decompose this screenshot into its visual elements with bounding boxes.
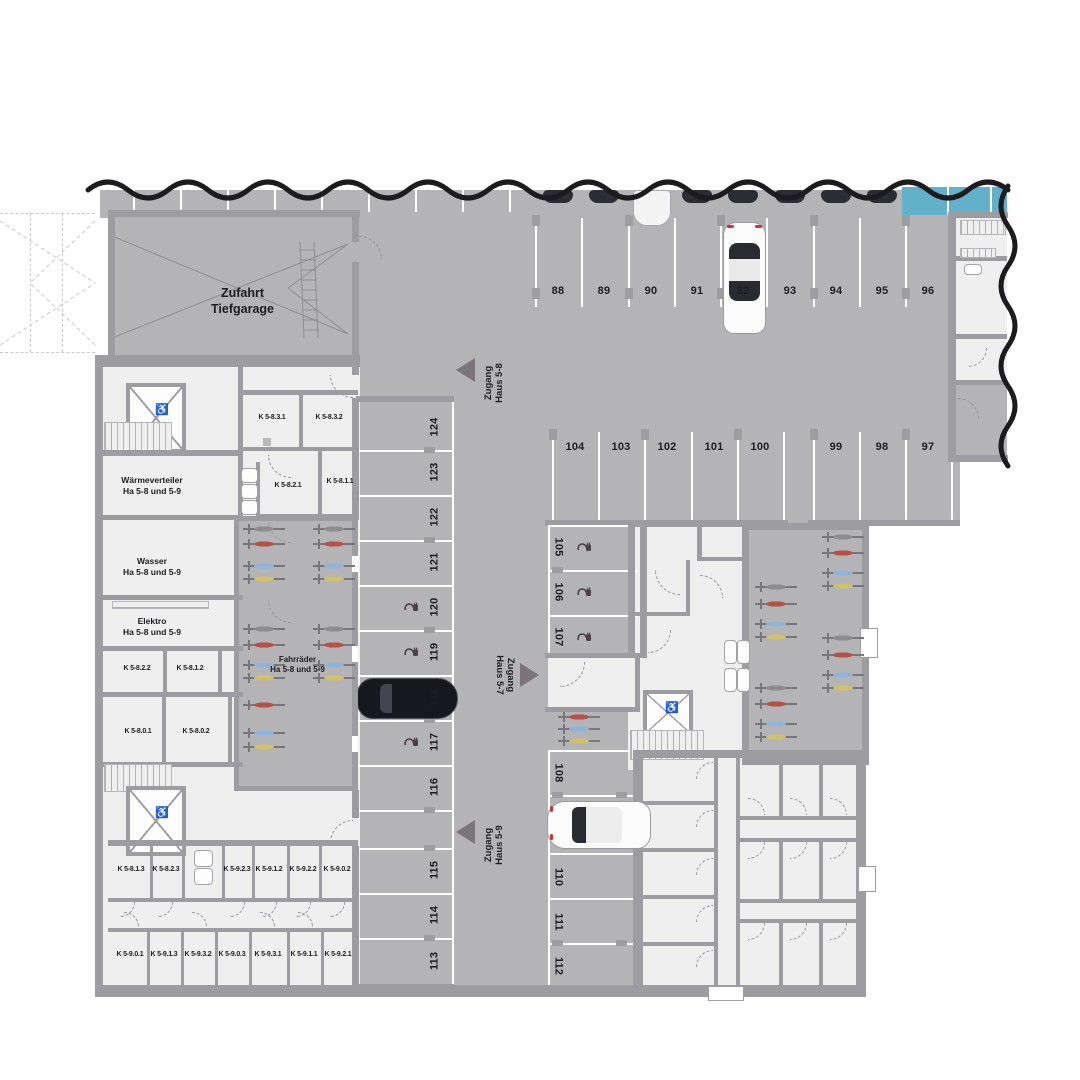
parking-spot-119-label: 119 xyxy=(420,646,450,659)
wall xyxy=(736,757,740,987)
zugang-haus-5-9-label: Zugang Haus 5-9 xyxy=(483,814,505,876)
exit-door xyxy=(708,986,744,1001)
bicycle-icon xyxy=(243,624,285,634)
ev-charging-icon xyxy=(403,645,419,658)
parking-tick xyxy=(424,807,435,813)
wall xyxy=(215,930,218,988)
wall xyxy=(103,646,243,651)
parking-line xyxy=(356,585,452,587)
wall xyxy=(545,707,640,712)
parking-spot-111-label: 111 xyxy=(544,916,574,929)
stroller-icon xyxy=(724,668,737,692)
parking-spot-120-label: 120 xyxy=(420,601,450,614)
room-label-k-5-8-3-1: K 5-8.3.1 xyxy=(248,414,296,421)
parking-line xyxy=(356,893,452,895)
parking-spot-91-label: 91 xyxy=(683,284,711,297)
parking-tick xyxy=(625,215,633,226)
parking-spot-116-label: 116 xyxy=(420,781,450,794)
bicycle-icon xyxy=(558,724,600,734)
parking-line xyxy=(548,750,633,752)
parking-tick xyxy=(717,215,725,226)
wall xyxy=(819,757,823,819)
zugang-haus-5-7-label: Zugang Haus 5-7 xyxy=(494,644,516,706)
wall xyxy=(819,840,823,902)
wall xyxy=(162,697,166,765)
parking-line xyxy=(356,495,452,497)
wall xyxy=(745,758,869,765)
wall xyxy=(181,930,184,988)
wall xyxy=(352,398,359,520)
wall xyxy=(287,930,290,988)
ev-charging-icon xyxy=(576,585,592,598)
bicycle-icon xyxy=(755,732,797,742)
bicycle-icon xyxy=(822,670,864,680)
bicycle-icon xyxy=(755,599,797,609)
bottom-right-block-floor xyxy=(641,755,860,990)
parking-line xyxy=(581,218,583,307)
bicycle-icon xyxy=(822,633,864,643)
bicycle-icon xyxy=(822,568,864,578)
parking-spot-89-label: 89 xyxy=(590,284,618,297)
room-label-k-5-8-2-1: K 5-8.2.1 xyxy=(264,482,312,489)
parking-line xyxy=(859,432,861,523)
parking-line xyxy=(356,810,452,812)
floor-drain-icon xyxy=(263,438,271,446)
ramp-label-line1: Zufahrt xyxy=(170,285,315,301)
zugang-5-8-line1: Zugang xyxy=(483,352,494,414)
wall xyxy=(640,525,647,658)
parking-line xyxy=(905,432,907,523)
parking-tick xyxy=(810,288,818,299)
parking-tick xyxy=(616,940,627,946)
zugang-5-7-line1: Zugang xyxy=(505,644,516,706)
bicycle-icon xyxy=(822,532,864,542)
parking-line xyxy=(356,540,452,542)
wall xyxy=(95,362,103,992)
wall xyxy=(697,525,702,561)
parking-tick xyxy=(424,935,435,941)
parking-line xyxy=(674,218,676,307)
zugang-haus-5-9-arrow xyxy=(456,820,475,844)
parking-spot-123-label: 123 xyxy=(420,466,450,479)
parking-spot-92-label: 92 xyxy=(729,284,757,297)
ev-charging-icon xyxy=(403,600,419,613)
cut-line-top xyxy=(88,174,1018,202)
parking-spot-104-label: 104 xyxy=(561,440,589,453)
driveway-lines xyxy=(0,213,95,353)
wall xyxy=(299,392,303,450)
bicycle-icon xyxy=(243,742,285,752)
parking-spot-93-label: 93 xyxy=(776,284,804,297)
wall xyxy=(643,942,718,946)
wall xyxy=(249,930,252,988)
room-label-k-5-9-2-1: K 5-9.2.1 xyxy=(315,951,361,958)
parking-spot-102-label: 102 xyxy=(653,440,681,453)
wall xyxy=(745,523,869,530)
room-label-k-5-8-3-2: K 5-8.3.2 xyxy=(305,414,353,421)
stroller-icon xyxy=(737,640,750,664)
parking-tick xyxy=(902,429,910,440)
parking-line xyxy=(356,630,452,632)
wall xyxy=(218,648,222,694)
parking-line xyxy=(548,898,633,900)
parking-tick xyxy=(549,429,557,440)
tiefgarage-floor-plan: 88 89 90 91 92 93 94 95 96 104 103 102 1… xyxy=(0,0,1080,1080)
wall xyxy=(628,612,690,616)
shelf-icon xyxy=(964,264,982,275)
fahrraeder-line2: Ha 5-8 und 5-9 xyxy=(250,665,345,675)
wall xyxy=(714,757,718,987)
parking-line xyxy=(644,432,646,523)
bicycle-icon xyxy=(313,574,355,584)
bicycle-icon xyxy=(243,561,285,571)
wall xyxy=(147,930,150,988)
parking-tick xyxy=(810,429,818,440)
parking-line xyxy=(356,765,452,767)
wall xyxy=(697,557,749,561)
elektro-line1: Elektro xyxy=(102,616,202,627)
wall xyxy=(234,520,239,790)
exit-door xyxy=(858,866,876,892)
parking-tick xyxy=(424,537,435,543)
wall xyxy=(108,210,360,217)
parking-tick xyxy=(552,792,563,798)
bicycle-icon xyxy=(755,632,797,642)
zugang-5-7-line2: Haus 5-7 xyxy=(493,644,504,706)
room-label-fahrraeder: Fahrräder Ha 5-8 und 5-9 xyxy=(250,655,345,675)
parking-spot-90-label: 90 xyxy=(637,284,665,297)
wall xyxy=(779,840,783,902)
parking-spot-108-label: 108 xyxy=(544,767,574,780)
ev-charging-icon xyxy=(403,735,419,748)
parking-spot-122-label: 122 xyxy=(420,511,450,524)
wheelchair-icon: ♿ xyxy=(665,701,679,714)
zugang-5-9-line2: Haus 5-9 xyxy=(494,814,505,876)
parking-line xyxy=(813,432,815,523)
wall xyxy=(103,692,243,697)
waermeverteiler-line2: Ha 5-8 und 5-9 xyxy=(102,486,202,497)
stroller-icon xyxy=(241,500,258,515)
wall xyxy=(352,262,359,362)
cut-line-right xyxy=(994,186,1022,476)
room-label-elektro: Elektro Ha 5-8 und 5-9 xyxy=(102,616,202,637)
elektro-line2: Ha 5-8 und 5-9 xyxy=(102,627,202,638)
parking-line xyxy=(766,218,768,307)
room-label-wasser: Wasser Ha 5-8 und 5-9 xyxy=(102,556,202,577)
parking-spot-124-label: 124 xyxy=(420,421,450,434)
bicycle-icon xyxy=(313,524,355,534)
parking-line xyxy=(552,432,554,523)
parking-spot-105-label: 105 xyxy=(544,541,574,554)
wall xyxy=(635,653,640,712)
staircase xyxy=(960,248,996,258)
stroller-icon xyxy=(194,868,213,885)
wall xyxy=(643,848,718,852)
wall xyxy=(686,560,690,616)
parking-line xyxy=(737,432,739,523)
bicycle-icon xyxy=(243,728,285,738)
car-icon-spot-92 xyxy=(723,222,766,334)
ev-charging-icon xyxy=(576,630,592,643)
parking-line xyxy=(356,450,452,452)
stroller-icon xyxy=(737,668,750,692)
parking-tick xyxy=(532,288,540,299)
wall xyxy=(234,516,356,521)
parking-tick xyxy=(424,845,435,851)
parking-tick xyxy=(641,429,649,440)
stroller-icon xyxy=(194,850,213,867)
parking-line xyxy=(356,848,452,850)
room-label-k-5-8-0-1: K 5-8.0.1 xyxy=(114,728,162,735)
waermeverteiler-line1: Wärmeverteiler xyxy=(102,475,202,486)
parking-spot-97-label: 97 xyxy=(914,440,942,453)
parking-line xyxy=(691,432,693,523)
parking-spot-110-label: 110 xyxy=(544,871,574,884)
bicycle-icon xyxy=(243,700,285,710)
parking-spot-112-label: 112 xyxy=(544,960,574,973)
wall xyxy=(103,515,243,520)
parking-tick xyxy=(734,429,742,440)
parking-line xyxy=(548,615,638,617)
bicycle-icon xyxy=(313,624,355,634)
parking-spot-100-label: 100 xyxy=(746,440,774,453)
bicycle-icon xyxy=(313,561,355,571)
parking-tick xyxy=(902,288,910,299)
wall xyxy=(352,212,359,242)
wall xyxy=(243,447,358,451)
parking-tick xyxy=(902,215,910,226)
parking-spot-101-label: 101 xyxy=(700,440,728,453)
parking-spot-118-label: 118 xyxy=(420,691,450,704)
room-label-k-5-8-1-2: K 5-8.1.2 xyxy=(166,665,214,672)
parking-spot-106-label: 106 xyxy=(544,586,574,599)
room-label-k-5-8-1-1: K 5-8.1.1 xyxy=(316,478,364,485)
parking-spot-114-label: 114 xyxy=(420,909,450,922)
bicycle-icon xyxy=(558,736,600,746)
bicycle-icon xyxy=(243,539,285,549)
wall xyxy=(321,930,324,988)
parking-tick xyxy=(532,215,540,226)
bicycle-icon xyxy=(243,640,285,650)
bicycle-icon xyxy=(755,719,797,729)
wall xyxy=(228,697,232,765)
vent-grille xyxy=(112,601,209,609)
wall xyxy=(103,450,243,456)
bicycle-icon xyxy=(313,539,355,549)
wheelchair-icon: ♿ xyxy=(155,403,169,416)
parking-tick xyxy=(552,567,563,573)
parking-spot-113-label: 113 xyxy=(420,955,450,968)
bicycle-icon xyxy=(243,574,285,584)
wall xyxy=(103,595,243,600)
parking-tick xyxy=(616,792,627,798)
parking-line xyxy=(356,938,452,940)
wall xyxy=(643,801,718,805)
bicycle-icon xyxy=(755,683,797,693)
zugang-haus-5-8-arrow xyxy=(456,358,475,382)
bicycle-icon xyxy=(243,524,285,534)
parking-spot-117-label: 117 xyxy=(420,736,450,749)
bicycle-icon xyxy=(822,650,864,660)
bicycle-icon xyxy=(822,581,864,591)
parking-line xyxy=(598,432,600,523)
door-opening xyxy=(352,736,358,752)
parking-line xyxy=(548,525,638,527)
parking-spot-115-label: 115 xyxy=(420,864,450,877)
parking-spot-94-label: 94 xyxy=(822,284,850,297)
wall xyxy=(819,921,823,987)
bicycle-icon xyxy=(313,640,355,650)
wheelchair-icon: ♿ xyxy=(155,806,169,819)
bicycle-icon xyxy=(558,712,600,722)
wall xyxy=(545,653,640,658)
zugang-5-8-line2: Haus 5-8 xyxy=(494,352,505,414)
bicycle-icon xyxy=(822,548,864,558)
wall xyxy=(740,816,858,820)
wall xyxy=(352,367,359,375)
parking-spot-107-label: 107 xyxy=(544,631,574,644)
parking-line xyxy=(859,218,861,307)
stroller-icon xyxy=(241,484,258,499)
wall xyxy=(352,790,359,818)
car-icon-spot-109 xyxy=(547,801,651,849)
parking-tick xyxy=(424,447,435,453)
zugang-5-9-line1: Zugang xyxy=(483,814,494,876)
wall xyxy=(633,985,866,997)
parking-spot-88-label: 88 xyxy=(544,284,572,297)
parking-spot-103-label: 103 xyxy=(607,440,635,453)
wall xyxy=(643,895,718,899)
fahrraeder-line1: Fahrräder xyxy=(250,655,345,665)
zugang-haus-5-8-label: Zugang Haus 5-8 xyxy=(483,352,505,414)
parking-spot-98-label: 98 xyxy=(868,440,896,453)
stroller-icon xyxy=(241,468,258,483)
ev-charging-icon xyxy=(576,540,592,553)
wasser-line1: Wasser xyxy=(102,556,202,567)
parking-line xyxy=(356,720,452,722)
room-label-k-5-9-0-2: K 5-9.0.2 xyxy=(314,866,360,873)
wall xyxy=(356,396,454,402)
wall xyxy=(633,750,868,758)
room-label-k-5-8-2-2: K 5-8.2.2 xyxy=(113,665,161,672)
wall xyxy=(95,355,360,367)
bicycle-icon xyxy=(755,619,797,629)
parking-edge-line xyxy=(548,750,550,988)
parking-tick xyxy=(810,215,818,226)
parking-tick xyxy=(424,627,435,633)
wall xyxy=(779,757,783,819)
wall xyxy=(234,786,356,791)
parking-spot-99-label: 99 xyxy=(822,440,850,453)
bicycle-icon xyxy=(755,582,797,592)
room-label-waermeverteiler: Wärmeverteiler Ha 5-8 und 5-9 xyxy=(102,475,202,496)
wall xyxy=(633,750,643,990)
wall xyxy=(779,921,783,987)
parking-spot-95-label: 95 xyxy=(868,284,896,297)
zugang-haus-5-7-arrow xyxy=(520,663,539,687)
parking-spot-96-label: 96 xyxy=(914,284,942,297)
ramp-label: Zufahrt Tiefgarage xyxy=(170,285,315,318)
wasser-line2: Ha 5-8 und 5-9 xyxy=(102,567,202,578)
parking-spot-121-label: 121 xyxy=(420,556,450,569)
wall xyxy=(108,210,115,362)
bicycle-icon xyxy=(755,699,797,709)
parking-line xyxy=(548,853,633,855)
wall xyxy=(740,899,858,903)
bicycle-icon xyxy=(822,683,864,693)
stroller-icon xyxy=(724,640,737,664)
room-label-k-5-8-2-3: K 5-8.2.3 xyxy=(143,866,189,873)
ramp-label-line2: Tiefgarage xyxy=(170,301,315,317)
wall xyxy=(628,520,635,658)
parking-tick xyxy=(625,288,633,299)
parking-line xyxy=(356,675,452,677)
parking-tick xyxy=(552,940,563,946)
room-label-k-5-8-0-2: K 5-8.0.2 xyxy=(172,728,220,735)
parking-line xyxy=(783,432,785,523)
